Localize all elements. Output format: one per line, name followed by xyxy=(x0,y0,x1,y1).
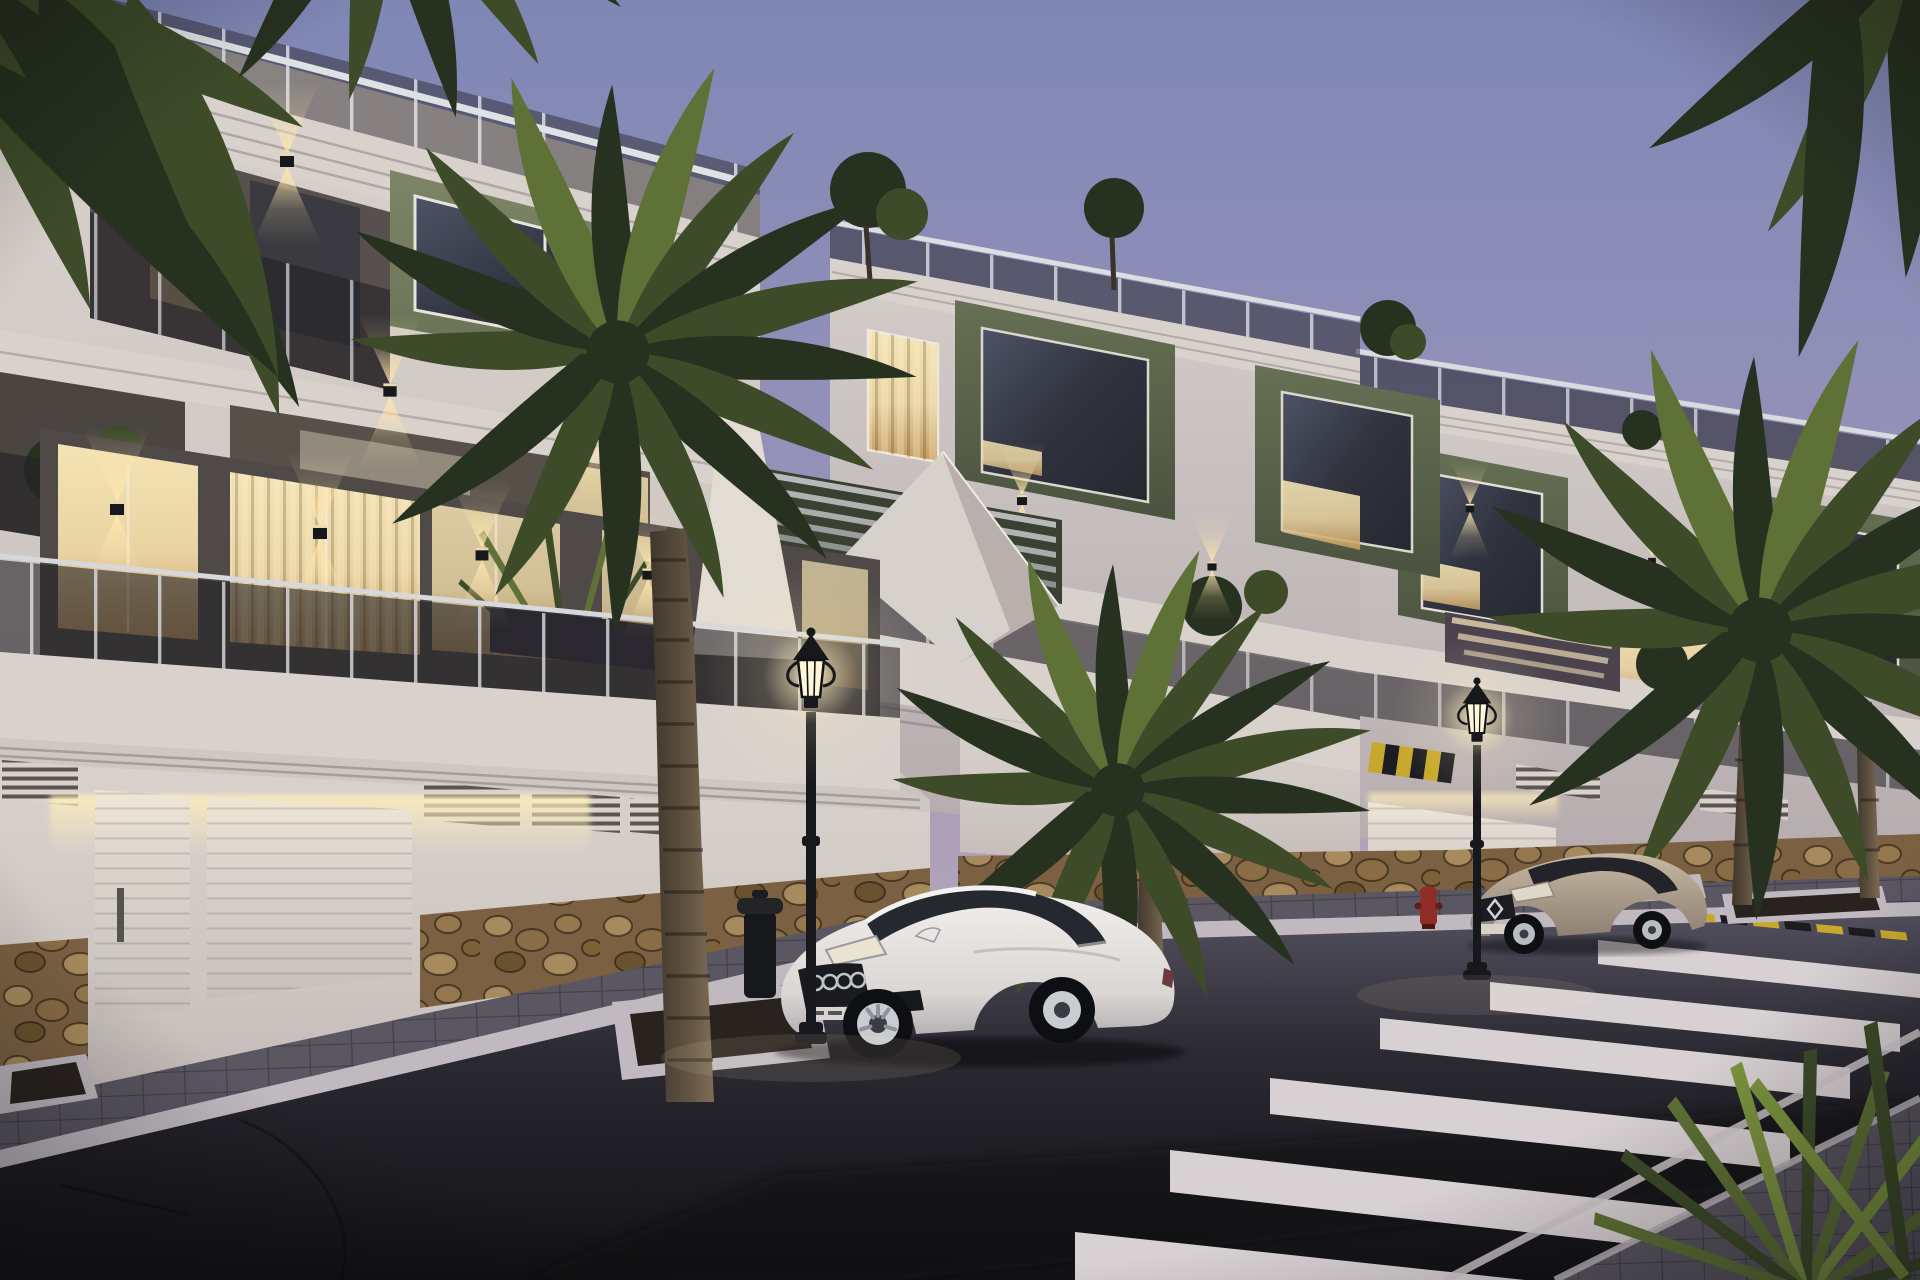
twilight-street-scene xyxy=(0,0,1920,1280)
scene-canvas xyxy=(0,0,1920,1280)
vignette-overlay xyxy=(0,0,1920,1280)
